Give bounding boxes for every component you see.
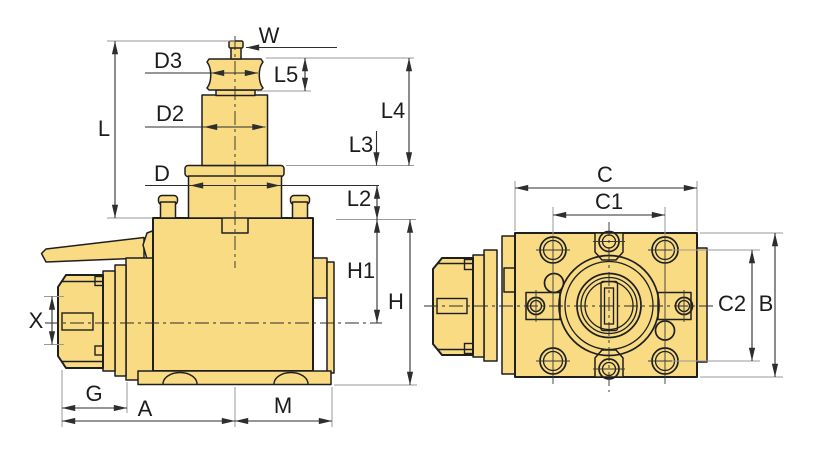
flange-lip bbox=[185, 166, 284, 177]
side-block bbox=[313, 258, 327, 298]
front-view: C C1 C2 B bbox=[424, 162, 783, 392]
right-plate bbox=[697, 248, 707, 362]
back-plate-strip bbox=[502, 236, 515, 374]
bearing-ring-outer bbox=[115, 265, 126, 376]
spacer-washer bbox=[216, 90, 255, 96]
collet-nut bbox=[58, 275, 103, 368]
dim-label-l5: L5 bbox=[274, 62, 298, 87]
spindle-nose bbox=[126, 258, 153, 380]
locating-pin-body bbox=[161, 202, 176, 218]
side-plate bbox=[327, 262, 334, 373]
gearbox-body bbox=[153, 218, 313, 371]
dim-label-c: C bbox=[597, 162, 613, 187]
technical-drawing-canvas: W D3 L5 D2 L4 L L3 D L2 H1 H X G A M bbox=[0, 0, 825, 470]
dim-label-m: M bbox=[274, 393, 292, 418]
dim-label-h: H bbox=[388, 289, 404, 314]
dim-label-g: G bbox=[85, 381, 102, 406]
dim-label-h1: H1 bbox=[347, 258, 375, 283]
dim-label-w: W bbox=[259, 23, 280, 48]
bearing-ring-inner bbox=[103, 271, 115, 371]
dim-label-d: D bbox=[154, 161, 170, 186]
pull-stud-tip bbox=[229, 41, 243, 48]
side-view: W D3 L5 D2 L4 L L3 D L2 H1 H X G A M bbox=[29, 23, 417, 427]
dim-label-c1: C1 bbox=[595, 189, 623, 214]
dim-label-l2: L2 bbox=[347, 186, 371, 211]
front-view-part bbox=[433, 232, 707, 380]
dim-label-c2: C2 bbox=[718, 291, 746, 316]
dim-label-d2: D2 bbox=[156, 101, 184, 126]
dim-label-l3: L3 bbox=[349, 132, 373, 157]
pull-stud-shank bbox=[231, 47, 241, 59]
bearing-ring-outer-front bbox=[484, 250, 497, 361]
dimension-drawing: W D3 L5 D2 L4 L L3 D L2 H1 H X G A M bbox=[0, 0, 825, 470]
base-plate bbox=[138, 371, 331, 385]
locating-pin-body bbox=[293, 202, 308, 218]
dim-label-x: X bbox=[29, 308, 44, 333]
dim-label-a: A bbox=[138, 396, 153, 421]
dim-label-b: B bbox=[759, 291, 774, 316]
side-view-part bbox=[42, 41, 335, 385]
dim-label-d3: D3 bbox=[154, 48, 182, 73]
dim-label-l: L bbox=[98, 116, 110, 141]
dim-label-l4: L4 bbox=[381, 98, 405, 123]
